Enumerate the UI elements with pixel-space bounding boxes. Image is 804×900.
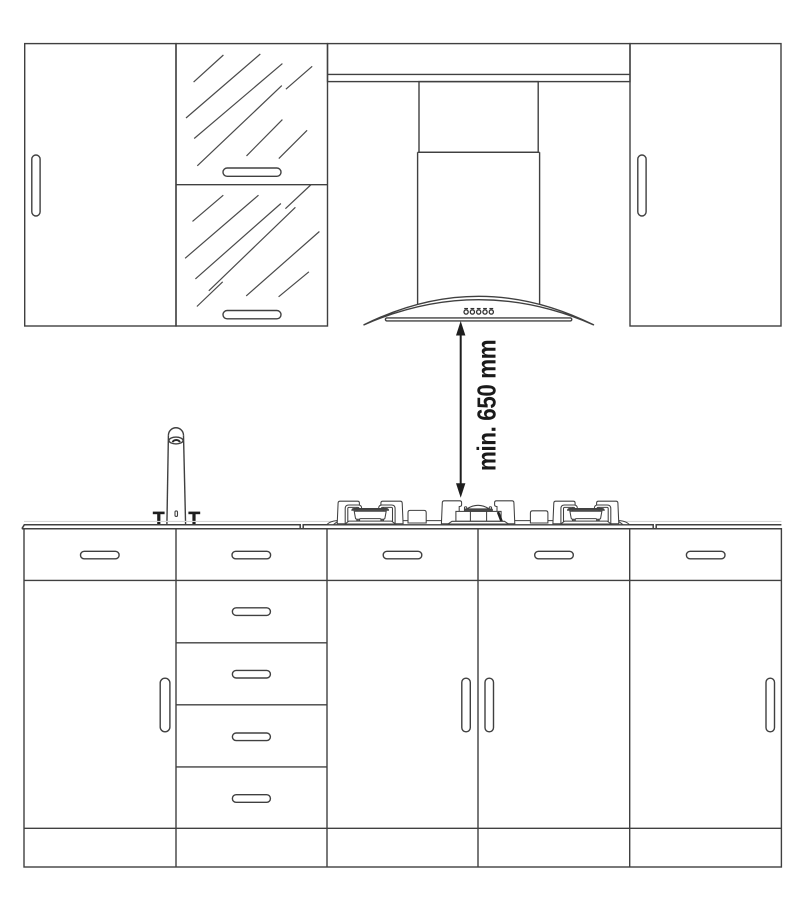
svg-text:min. 650 mm: min. 650 mm [473,340,502,471]
